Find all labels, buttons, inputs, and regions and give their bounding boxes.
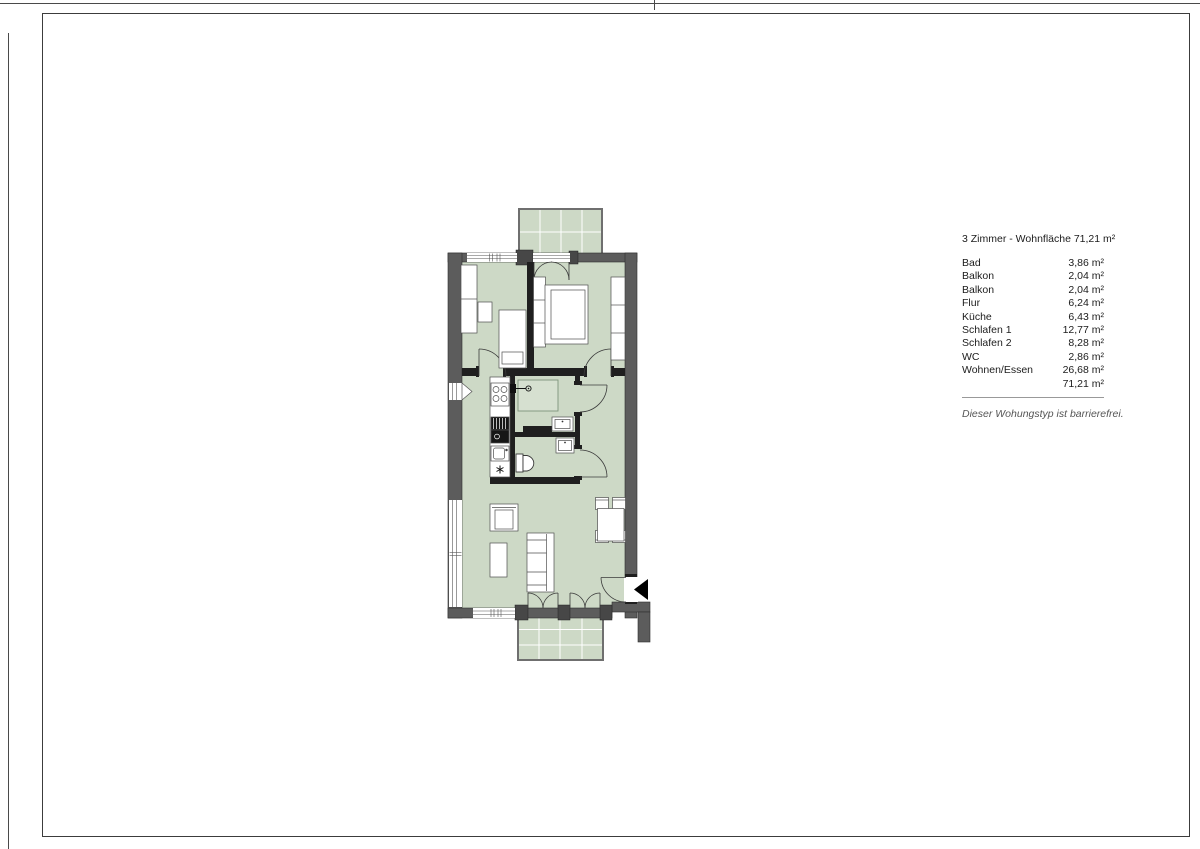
washbasin-wc-icon [556, 438, 574, 453]
wardrobe-schlafen1 [611, 277, 625, 360]
legend-row: Flur6,24 m² [962, 297, 1104, 310]
legend-row: Küche6,43 m² [962, 311, 1104, 324]
sink-icon [491, 446, 509, 461]
washbasin-bad-icon [552, 417, 573, 431]
legend-row: Schlafen 112,77 m² [962, 324, 1104, 337]
dishwasher-icon [491, 417, 509, 430]
legend-rows: Bad3,86 m² Balkon2,04 m² Balkon2,04 m² F… [962, 257, 1104, 391]
sheet-outer-left-line [8, 33, 9, 849]
legend-row: Wohnen/Essen26,68 m² [962, 364, 1104, 377]
sheet-top-tick [654, 0, 655, 10]
balcony-bottom [518, 614, 603, 660]
balcony-door-sill [533, 253, 570, 262]
stove-icon [491, 383, 509, 406]
accessibility-note: Dieser Wohungstyp ist barrierefrei. [962, 408, 1104, 420]
floor-plan [440, 195, 665, 665]
legend-row: Balkon2,04 m² [962, 284, 1104, 297]
legend-row: WC2,86 m² [962, 351, 1104, 364]
window-living-left [449, 500, 462, 607]
sheet-outer-top-line [0, 3, 1200, 4]
kitchen-counter [490, 377, 510, 477]
double-bed [545, 285, 588, 344]
window-schlafen2 [467, 253, 517, 262]
window-living-bottom [473, 608, 515, 618]
legend-title: 3 Zimmer - Wohnfläche 71,21 m² [962, 233, 1104, 246]
oven-icon [491, 430, 509, 443]
single-bed [499, 310, 526, 368]
legend-row: Schlafen 28,28 m² [962, 337, 1104, 350]
shelf-schlafen1 [534, 277, 546, 347]
legend-row: Balkon2,04 m² [962, 270, 1104, 283]
armchair [490, 504, 518, 531]
coffee-table [490, 543, 507, 577]
legend-divider [962, 397, 1104, 398]
dining-table [598, 509, 625, 542]
sofa [527, 533, 554, 592]
area-legend: 3 Zimmer - Wohnfläche 71,21 m² Bad3,86 m… [962, 233, 1104, 420]
legend-total-row: 71,21 m² [962, 378, 1104, 391]
balcony-top [519, 209, 602, 256]
legend-row: Bad3,86 m² [962, 257, 1104, 270]
